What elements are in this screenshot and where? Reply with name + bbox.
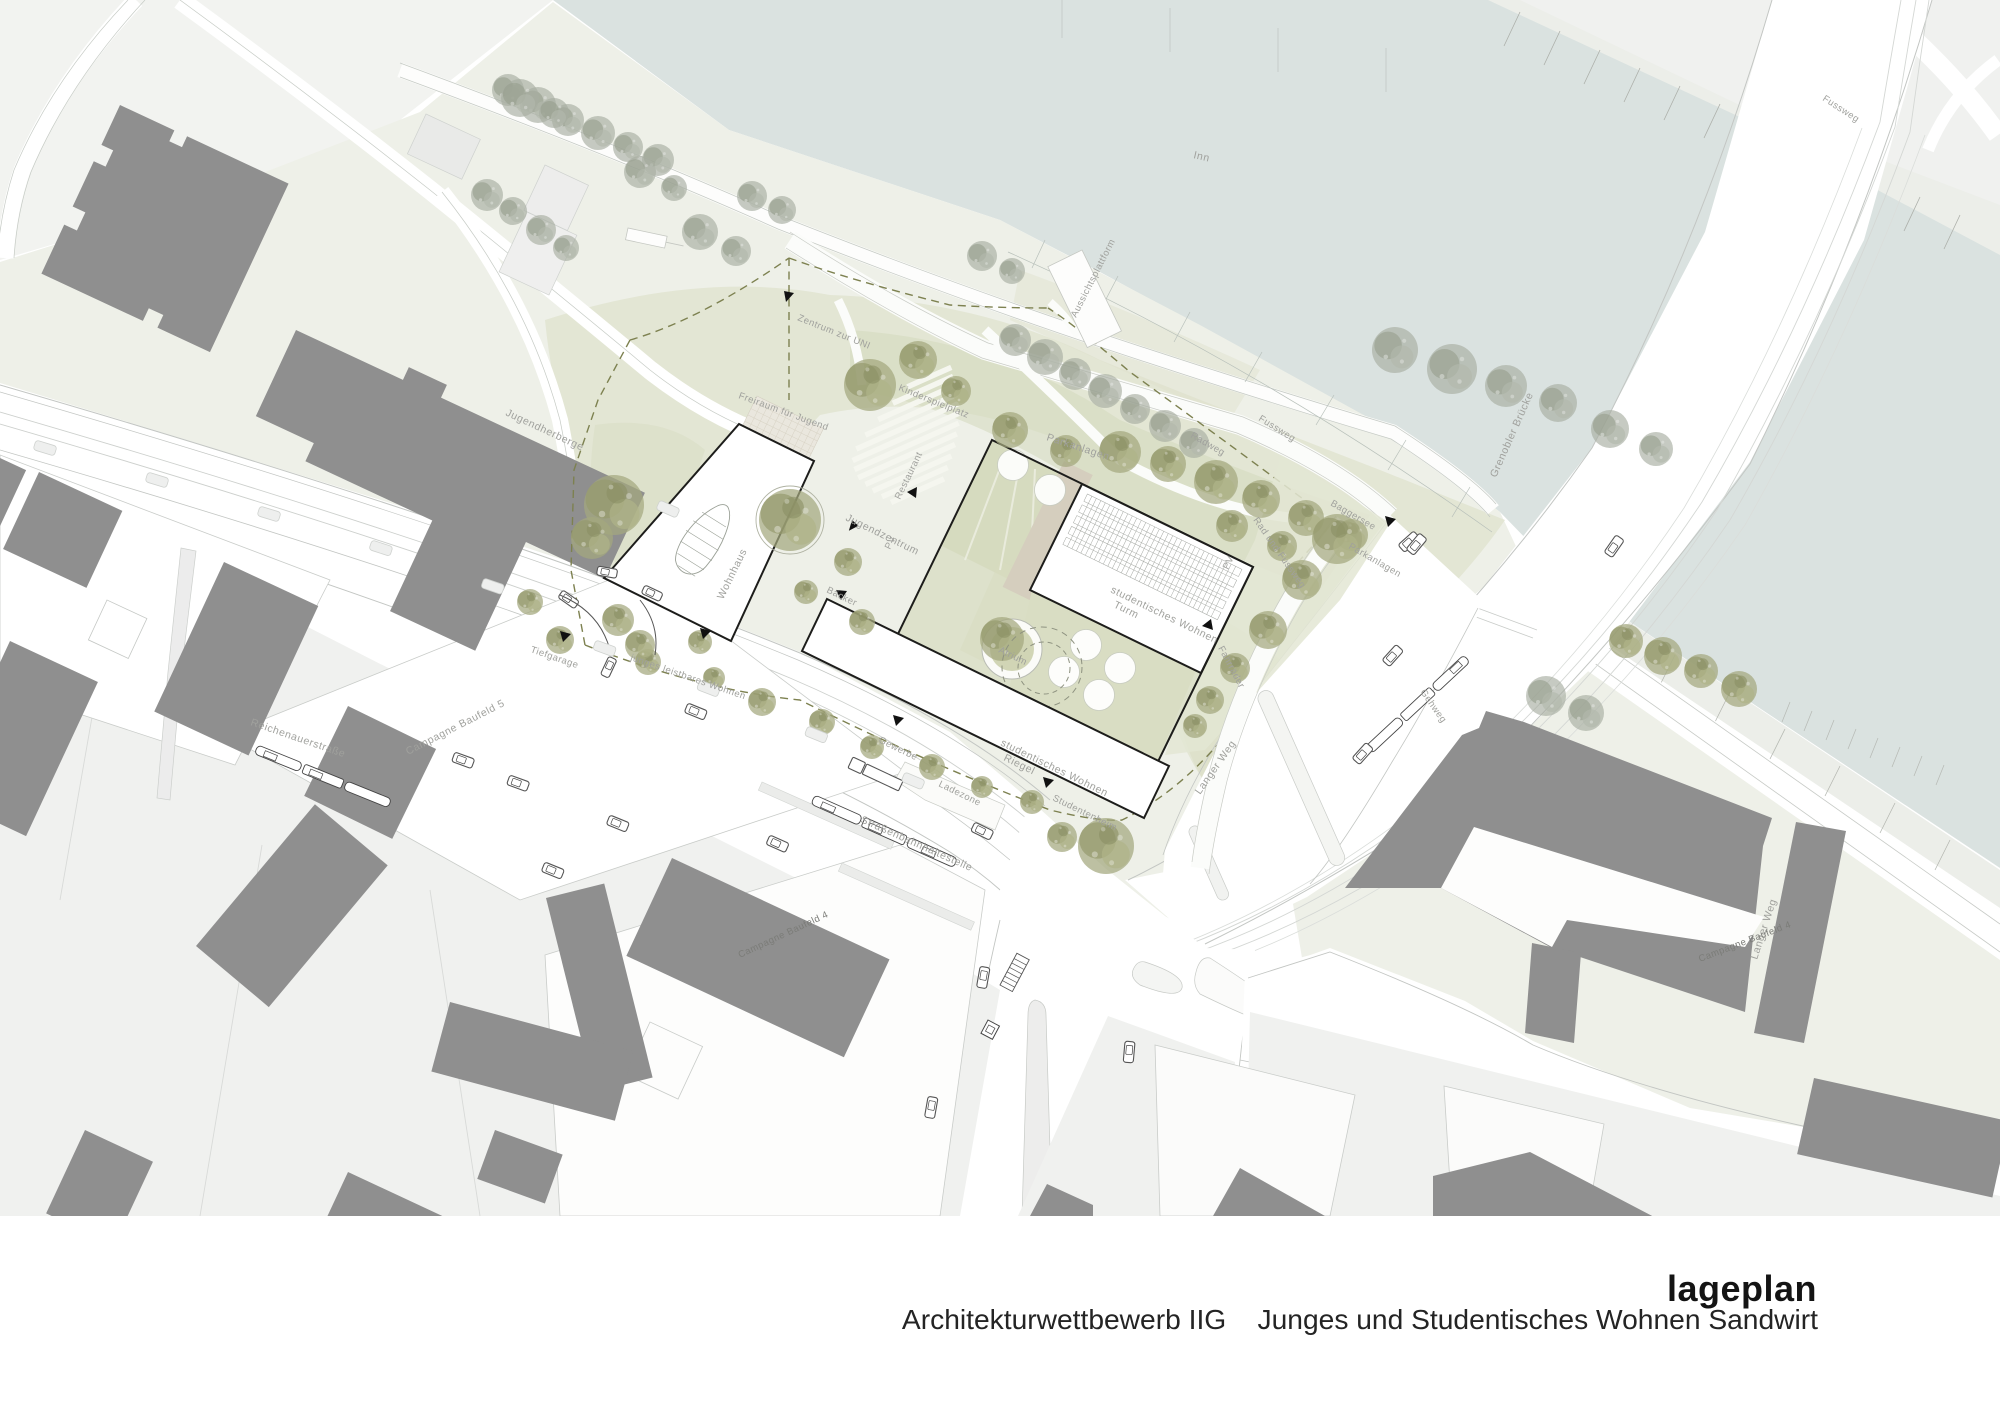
svg-text:Architekturwettbewerb IIG J: Architekturwettbewerb IIG Junges und Stu… bbox=[902, 1303, 1818, 1335]
